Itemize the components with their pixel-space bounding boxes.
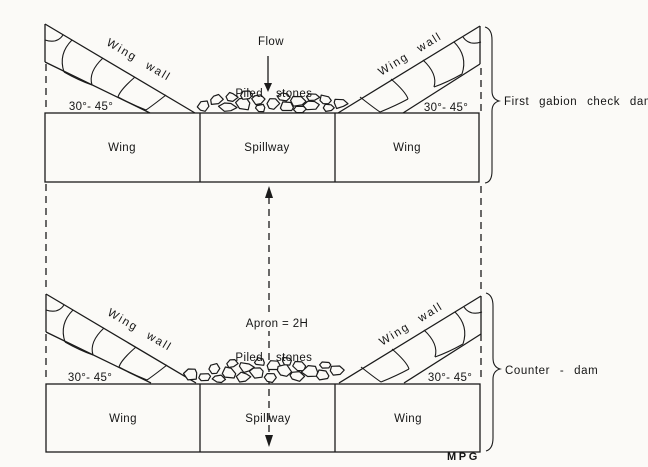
counter-dam-angle-left-label: 30°- 45° [68, 372, 112, 384]
stone [184, 369, 197, 380]
first-dam-wing-wall-left-label: Wing wall [104, 37, 172, 84]
counter-dam-spillway-label: Spillway [245, 413, 290, 425]
counter-dam-piled-label: Piled [235, 352, 263, 364]
first-dam-wing-wall-right [338, 26, 481, 113]
stone [236, 372, 250, 382]
first-dam-wing-right-label: Wing [393, 142, 421, 154]
stone [249, 368, 263, 378]
stone [222, 367, 235, 378]
stone [320, 362, 331, 368]
stone [264, 374, 276, 383]
first-dam-piled-label: Piled [235, 88, 263, 100]
counter-dam-wing-wall-right [339, 296, 482, 383]
stone [316, 370, 329, 380]
flow-label: Flow [258, 36, 284, 48]
stone [334, 99, 348, 108]
stone [256, 104, 265, 111]
first-dam-wing-left-label: Wing [108, 142, 136, 154]
down-arrow-icon [265, 435, 273, 447]
counter-dam-wing-left-label: Wing [109, 413, 137, 425]
stone [211, 95, 224, 105]
first-dam-brace-label: First gabion check dam [504, 96, 648, 108]
stone [277, 364, 291, 376]
counter-dam-angle-right-label: 30°- 45° [428, 372, 472, 384]
first-dam-stones-label: stones [276, 88, 312, 100]
stone [320, 95, 331, 104]
counter-dam-piled-stones-graphic [184, 357, 345, 382]
counter-dam-stones-label: stones [276, 352, 312, 364]
counter-dam-wing-wall-left-label: Wing wall [105, 307, 173, 354]
stone [330, 366, 344, 375]
counter-dam-wing-wall-left [46, 294, 196, 383]
first-dam-angle-right-label: 30°- 45° [424, 102, 468, 114]
stone [197, 101, 209, 111]
stone [323, 104, 334, 111]
first-dam-spillway-label: Spillway [244, 142, 289, 154]
stone [267, 99, 280, 110]
diagram-canvas: Flow Piled stones Wing wall Wing wall 30… [0, 0, 648, 467]
first-dam-wing-wall-left [45, 24, 195, 113]
stone [219, 103, 238, 111]
flow-arrow-icon [264, 56, 272, 92]
apron-label: Apron = 2H [246, 318, 309, 330]
up-arrow-icon [265, 186, 273, 198]
counter-dam-brace-label: Counter - dam [505, 365, 598, 377]
stone [199, 374, 211, 381]
credit-label: MPG [447, 451, 480, 463]
first-dam-piled-stones-graphic [197, 91, 348, 113]
gabion-check-dam-figure: Flow Piled stones Wing wall Wing wall 30… [0, 0, 648, 467]
stone [209, 364, 220, 374]
first-dam-angle-left-label: 30°- 45° [69, 101, 113, 113]
counter-dam-brace [486, 293, 500, 451]
counter-dam-wing-right-label: Wing [394, 413, 422, 425]
first-dam-brace [485, 27, 499, 183]
